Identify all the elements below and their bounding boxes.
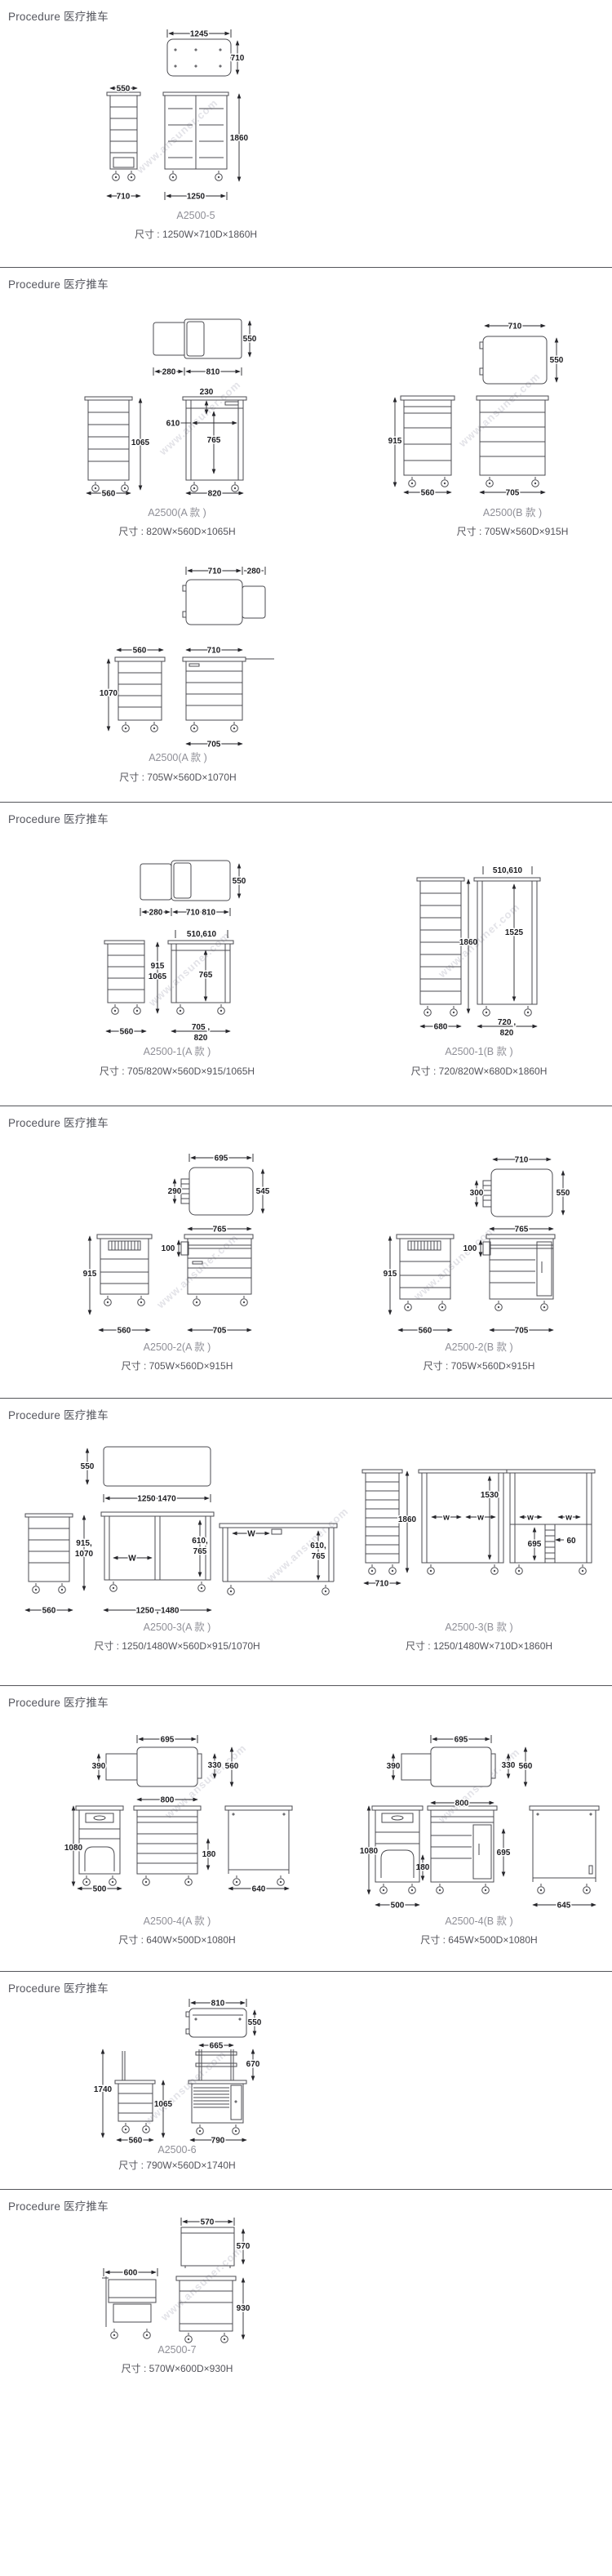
size-label: 尺寸 : 720/820W×680D×1860H <box>411 1066 548 1077</box>
section-header: Procedure 医疗推车 <box>8 1114 109 1130</box>
side-view <box>372 1806 423 1893</box>
dim-height: 1065 <box>131 438 150 447</box>
size-label: 尺寸 : 705W×560D×915H <box>457 526 569 537</box>
dim-front-bottom: 1250 , 1480 <box>136 1607 180 1616</box>
dim-side-width: 600 <box>124 2269 138 2278</box>
dim-height: 1080 <box>64 1844 83 1853</box>
dim-top-depth: 550 <box>243 335 257 344</box>
dim-w-label: W <box>247 1530 255 1539</box>
dim-top-depth-1: 330 <box>208 1761 222 1770</box>
dim-top-width: 710 <box>508 323 522 331</box>
product-figure-a2500-2a: 695 545 290 765 100 <box>83 1154 270 1372</box>
section-header: Procedure 医疗推车 <box>8 810 109 826</box>
dim-front-top: 765 <box>213 1226 227 1235</box>
top-view <box>483 1169 552 1217</box>
product-figure-a2500-4b: 695 390 330 560 800 695 180 <box>360 1735 599 1946</box>
size-label: 尺寸 : 705W×560D×1070H <box>119 772 236 783</box>
dim-w-label: W <box>128 1555 136 1564</box>
product-section-8: Procedure 医疗推车 www.ansuner.com 570 570 <box>0 2190 612 2576</box>
dim-top-width: 1245 <box>190 30 209 39</box>
size-label: 尺寸 : 570W×600D×930H <box>122 2363 233 2374</box>
dim-top-width: 695 <box>455 1736 468 1745</box>
size-label: 尺寸 : 645W×500D×1080H <box>420 1934 537 1946</box>
dim-top-depth-2: 560 <box>519 1762 533 1771</box>
front-view <box>483 1235 555 1310</box>
dim-top-depth-1: 330 <box>502 1761 516 1770</box>
product-figure-a2500-7: 570 570 600 930 A2500-7 尺寸 : 57 <box>102 2218 251 2374</box>
dim-column-width: 510,610 <box>493 866 523 875</box>
size-label: 尺寸 : 705W×560D×915H <box>424 1360 535 1372</box>
dim-side-bottom: 560 <box>102 490 116 499</box>
side-view <box>104 941 144 1014</box>
product-section-5: Procedure 医疗推车 www.ansuner.com 550 1250 … <box>0 1399 612 1686</box>
product-figure-a2500-4a: 695 390 330 560 800 180 <box>64 1735 292 1946</box>
dim-w-label: w <box>442 1514 450 1523</box>
dim-front-bottom-2: 820 <box>194 1034 208 1043</box>
dim-side-bottom: 560 <box>421 489 435 498</box>
top-view <box>181 1168 253 1215</box>
model-label: A2500-1(A 款 ) <box>144 1046 211 1057</box>
size-label: 尺寸 : 705/820W×560D×915/1065H <box>100 1066 255 1077</box>
right-view <box>530 1806 599 1893</box>
section-header: Procedure 医疗推车 <box>8 2197 109 2213</box>
top-view <box>106 1747 202 1786</box>
dim-top-width: 570 <box>201 2218 215 2227</box>
dim-height-2: 1070 <box>75 1550 94 1559</box>
dim-top-width: 710 <box>208 567 222 576</box>
dim-shelf-height: 695 <box>528 1540 542 1549</box>
dim-top-width: 695 <box>215 1155 228 1163</box>
technical-drawing-a2500-4: www.ansuner.com www.ansuner.com 695 390 … <box>0 1686 612 1971</box>
model-label: A2500(A 款 ) <box>149 752 207 763</box>
product-section-7: Procedure 医疗推车 www.ansuner.com 810 550 <box>0 1972 612 2190</box>
dim-side-width: 550 <box>117 85 131 94</box>
watermark: www.ansuner.com <box>410 1223 497 1303</box>
front-view <box>474 878 540 1016</box>
dim-height: 1860 <box>398 1515 417 1524</box>
dim-side-bottom: 560 <box>42 1607 56 1616</box>
dim-side-bottom: 560 <box>129 2137 143 2146</box>
size-label: 尺寸 : 640W×500D×1080H <box>118 1934 235 1946</box>
dim-inner-width: 610 <box>166 420 180 429</box>
size-label: 尺寸 : 790W×560D×1740H <box>118 2160 235 2171</box>
dim-top-width: 710 810 <box>186 909 216 918</box>
side-view <box>401 396 455 487</box>
dim-top-left: 280 <box>149 909 163 918</box>
dim-front-top: 710 <box>207 647 221 656</box>
dim-side-bottom: 680 <box>434 1023 448 1032</box>
watermark: www.ansuner.com <box>157 2244 244 2324</box>
model-label: A2500-1(B 款 ) <box>445 1046 512 1057</box>
dim-upper-height: 670 <box>246 2060 260 2069</box>
top-view <box>140 861 230 901</box>
side-view <box>25 1514 73 1593</box>
technical-drawing-a2500: www.ansuner.com www.ansuner.com 550 280 … <box>0 268 612 802</box>
model-label: A2500-7 <box>157 2344 196 2356</box>
product-section-6: Procedure 医疗推车 www.ansuner.com www.ansun… <box>0 1686 612 1972</box>
size-label: 尺寸 : 1250/1480W×560D×915/1070H <box>94 1640 259 1652</box>
dim-side-bottom: 560 <box>120 1028 134 1037</box>
dim-height: 1080 <box>360 1847 379 1856</box>
product-figure-a2500-2b: 710 550 300 765 100 <box>384 1156 570 1373</box>
dim-side-top: 560 <box>133 647 147 656</box>
dim-front-bottom-1: 705 , <box>192 1023 210 1032</box>
product-section-2: Procedure 医疗推车 www.ansuner.com www.ansun… <box>0 268 612 803</box>
dim-top-width: 710 <box>515 1156 529 1165</box>
dim-front-bottom: 705 <box>207 741 221 750</box>
watermark: www.ansuner.com <box>435 901 521 981</box>
dim-top-depth: 710 <box>231 54 245 63</box>
dim-height: 915 <box>388 437 402 446</box>
dim-right-bottom: 640 <box>252 1885 266 1894</box>
model-label: A2500-3(A 款 ) <box>144 1622 211 1633</box>
front-view <box>183 657 274 732</box>
dim-handle-depth: 100 <box>162 1244 175 1253</box>
model-label: A2500-2(B 款 ) <box>445 1341 512 1353</box>
dim-height: 915 <box>83 1270 97 1279</box>
dim-bin-height: 180 <box>416 1863 430 1872</box>
dim-tray-depth: 230 <box>200 388 214 397</box>
dim-height: 1070 <box>100 689 118 698</box>
technical-drawing-a2500-5: www.ansuner.com 1245 710 550 710 <box>0 0 612 267</box>
dim-side-bottom: 500 <box>391 1902 405 1911</box>
size-label: 尺寸 : 1250/1480W×710D×1860H <box>406 1640 552 1652</box>
side-view <box>115 657 165 732</box>
top-view <box>153 319 242 358</box>
dim-height: 915 <box>384 1270 397 1279</box>
top-view <box>183 580 265 625</box>
dim-height: 1860 <box>459 938 478 947</box>
model-label: A2500-4(A 款 ) <box>144 1915 211 1927</box>
product-figure-a2500-1a: 550 280 710 810 510,610 765 <box>100 861 255 1077</box>
dim-handle-depth: 100 <box>463 1244 477 1253</box>
dim-top-depth: 545 <box>256 1187 270 1196</box>
dim-door-height: 695 <box>497 1849 511 1857</box>
size-label: 尺寸 : 705W×560D×915H <box>122 1360 233 1372</box>
right-view <box>225 1806 292 1885</box>
dim-inner-height: 765 <box>199 971 213 980</box>
dim-front-top: 800 <box>455 1800 469 1809</box>
dim-side-bottom: 500 <box>93 1885 107 1894</box>
dim-side-bottom: 560 <box>419 1327 432 1336</box>
model-label: A2500-4(B 款 ) <box>445 1915 512 1927</box>
product-figure-a2500-3a: 550 1250 1470 915, 1070 W 610, <box>25 1447 337 1652</box>
section-header: Procedure 医疗推车 <box>8 275 109 291</box>
technical-drawing-a2500-3: www.ansuner.com 550 1250 1470 915, 1070 <box>0 1399 612 1685</box>
side-view <box>85 397 132 492</box>
dim-top-width: 810 <box>211 2000 225 2009</box>
dim-top-width: 1250 1470 <box>137 1495 176 1504</box>
dim-front-bottom: 705 <box>515 1327 529 1336</box>
top-view <box>186 2009 246 2037</box>
right-view <box>507 1470 595 1574</box>
dim-height-1: 915 <box>151 962 165 971</box>
dim-w-label: w <box>526 1514 534 1523</box>
page: { "page": { "watermark": "www.ansuner.co… <box>0 0 612 2576</box>
dim-height-1: 915, <box>76 1539 92 1548</box>
dim-handle-height: 300 <box>470 1189 484 1198</box>
front-view <box>419 1470 507 1574</box>
watermark: www.ansuner.com <box>264 1505 350 1585</box>
top-view <box>104 1447 211 1486</box>
watermark: www.ansuner.com <box>153 1231 240 1311</box>
dim-side-bottom: 710 <box>117 193 131 202</box>
dim-top-depth-2: 560 <box>225 1762 239 1771</box>
dim-height: 930 <box>237 2304 251 2313</box>
dim-front-bottom: 705 <box>506 489 520 498</box>
model-label: A2500(B 款 ) <box>483 507 542 518</box>
dim-inner-1: 610, <box>310 1542 326 1550</box>
watermark: www.ansuner.com <box>455 370 542 450</box>
dim-top-left-depth: 390 <box>387 1762 401 1771</box>
dim-top-right-width: 810 <box>206 368 220 377</box>
dim-top-depth: 550 <box>233 877 246 886</box>
dim-front-bottom: 705 <box>213 1327 227 1336</box>
technical-drawing-a2500-1: www.ansuner.com www.ansuner.com 550 280 … <box>0 803 612 1106</box>
dim-front-bottom-2: 820 <box>500 1029 514 1038</box>
product-figure-a2500-3b: 1860 710 1530 w w <box>362 1470 595 1652</box>
dim-top-depth: 550 <box>550 356 564 365</box>
dim-front-bottom: 1250 <box>187 193 206 202</box>
dim-front-bottom: 790 <box>211 2137 225 2146</box>
dim-height-2: 1065 <box>149 972 167 981</box>
dim-height: 1740 <box>94 2085 113 2094</box>
front-view <box>477 396 548 487</box>
side-view <box>97 1235 152 1306</box>
dim-body-height: 1065 <box>154 2100 173 2109</box>
dim-top-left-depth: 390 <box>92 1762 106 1771</box>
dim-handle-height: 290 <box>168 1187 182 1196</box>
section-header: Procedure 医疗推车 <box>8 1979 109 1995</box>
technical-drawing-a2500-7: www.ansuner.com 570 570 600 <box>0 2190 612 2576</box>
dim-front-top: 800 <box>161 1796 175 1805</box>
side-view <box>102 2276 156 2338</box>
dim-front-bottom-1: 720 , <box>498 1018 516 1027</box>
dim-inner-height: 765 <box>207 436 221 445</box>
model-label: A2500-3(B 款 ) <box>445 1622 512 1633</box>
size-label: 尺寸 : 1250W×710D×1860H <box>135 229 257 240</box>
dim-top-depth: 550 <box>248 2018 262 2027</box>
product-figure-a2500-a2: 710 280 560 710 1070 <box>100 567 274 783</box>
model-label: A2500(A 款 ) <box>148 507 206 518</box>
dim-inner-2: 765 <box>312 1552 326 1561</box>
technical-drawing-a2500-2: www.ansuner.com www.ansuner.com 695 545 … <box>0 1106 612 1398</box>
dim-inner-height: 1525 <box>505 928 524 937</box>
model-label: A2500-5 <box>176 210 215 221</box>
model-label: A2500-2(A 款 ) <box>144 1341 211 1353</box>
dim-side-bottom: 710 <box>375 1580 389 1589</box>
dim-w-label: w <box>477 1514 484 1523</box>
side-view <box>76 1806 123 1885</box>
model-label: A2500-6 <box>157 2144 196 2156</box>
dim-column-width: 510,610 <box>187 930 217 939</box>
top-view <box>401 1747 495 1786</box>
dim-inner-2: 765 <box>193 1547 207 1556</box>
dim-front-bottom: 820 <box>208 490 222 499</box>
dim-w-label: w <box>565 1514 572 1523</box>
dim-top-depth: 570 <box>237 2242 251 2251</box>
dim-top-right: 280 <box>247 567 261 576</box>
product-figure-a2500-1b: 1860 510,610 1525 680 720 , 820 A2500-1(… <box>411 866 548 1077</box>
dim-side-bottom: 560 <box>118 1327 131 1336</box>
dim-inner-1: 610, <box>192 1537 208 1546</box>
section-header: Procedure 医疗推车 <box>8 1406 109 1422</box>
dim-upper-width: 665 <box>210 2042 224 2051</box>
dim-post-width: 60 <box>566 1537 576 1546</box>
top-view <box>167 39 231 76</box>
size-label: 尺寸 : 820W×560D×1065H <box>118 526 235 537</box>
product-section-4: Procedure 医疗推车 www.ansuner.com www.ansun… <box>0 1106 612 1399</box>
dim-top-depth: 550 <box>557 1189 570 1198</box>
side-view <box>417 878 464 1016</box>
dim-top-left-width: 280 <box>162 368 176 377</box>
dim-inner-height: 1530 <box>481 1491 499 1500</box>
product-figure-a2500-a: 550 280 810 230 610 765 <box>85 319 257 537</box>
section-header: Procedure 医疗推车 <box>8 7 109 24</box>
dim-height: 1860 <box>230 134 249 143</box>
technical-drawing-a2500-6: www.ansuner.com 810 550 <box>0 1972 612 2189</box>
dim-top-width: 695 <box>161 1736 175 1745</box>
side-view <box>362 1470 402 1574</box>
dim-bin-height: 180 <box>202 1850 216 1859</box>
section-header: Procedure 医疗推车 <box>8 1693 109 1710</box>
product-section-3: Procedure 医疗推车 www.ansuner.com www.ansun… <box>0 803 612 1106</box>
product-section-1: Procedure 医疗推车 www.ansuner.com 1245 710 … <box>0 0 612 268</box>
dim-front-top: 765 <box>515 1226 529 1235</box>
dim-top-depth: 550 <box>81 1462 95 1471</box>
dim-right-bottom: 645 <box>557 1902 571 1911</box>
